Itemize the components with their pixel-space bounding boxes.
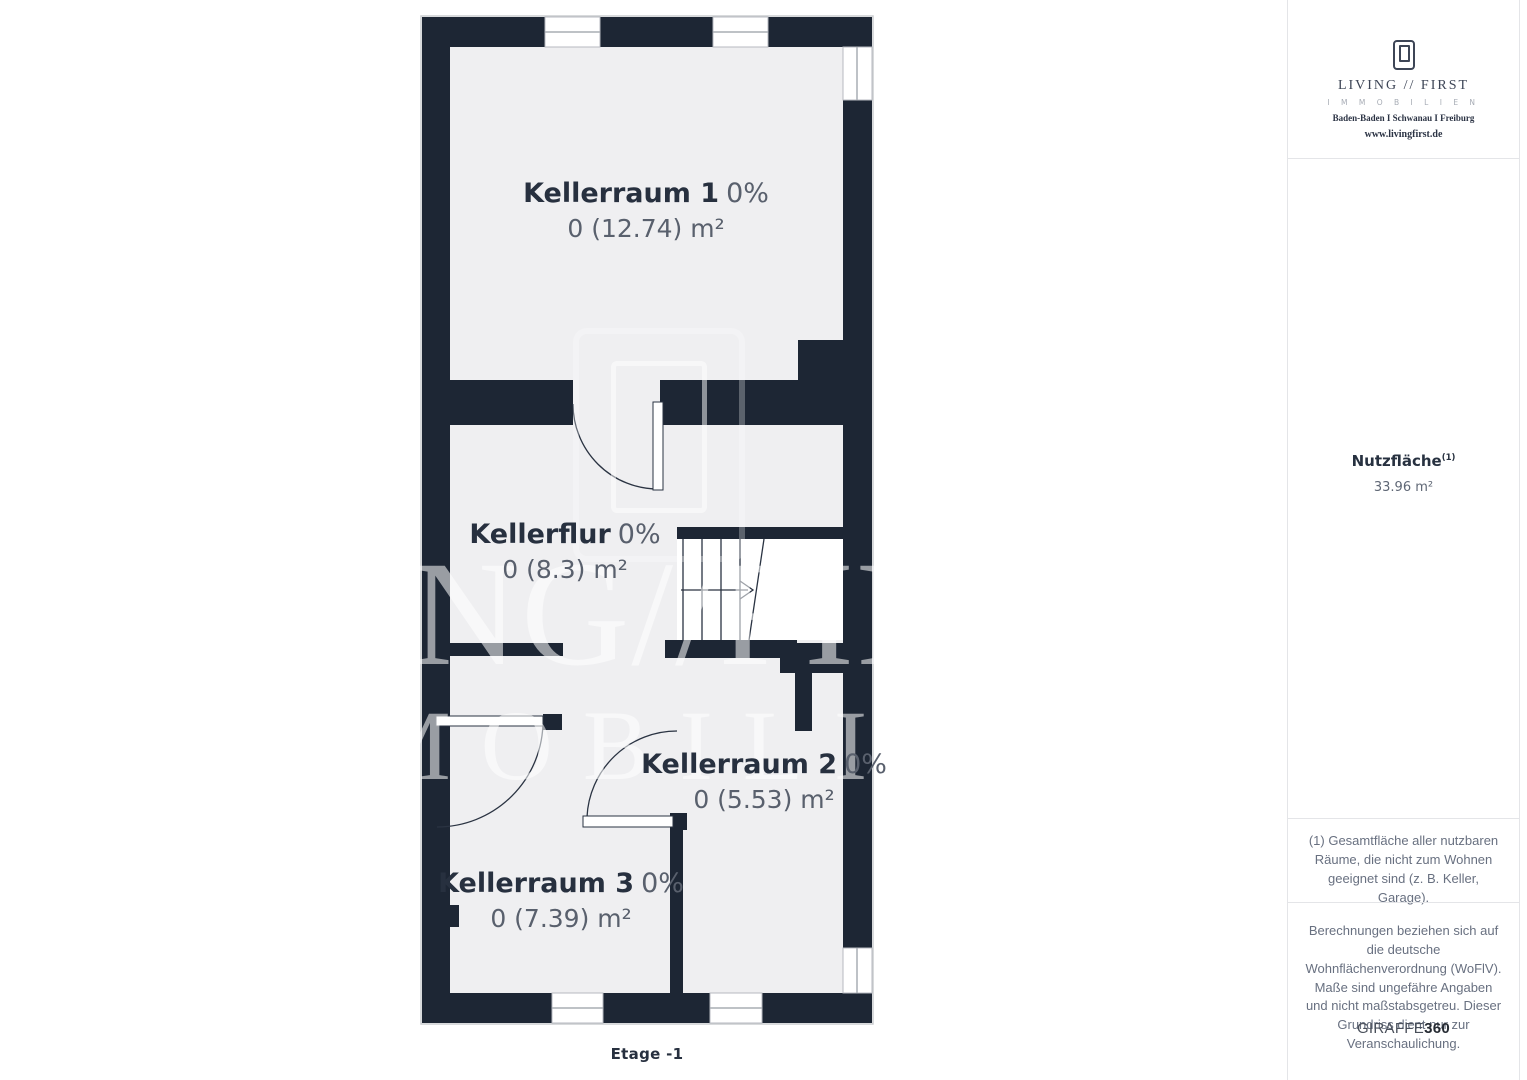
footnote-text: (1) Gesamtfläche aller nutzbaren Räume, … [1288,832,1519,907]
giraffe360-brand: GIRAFFE360 [1288,1020,1519,1037]
wall-kr3-door-jamb-right [543,714,562,730]
metric-value: 33.96 m² [1288,480,1519,495]
sidebar-divider [1288,902,1519,903]
window-bottom-1 [552,993,603,1023]
company-locations: Baden-Baden I Schwanau I Freiburg [1288,113,1519,123]
wall-kr3-door-jamb-left [422,714,437,730]
wall-right [843,17,872,1023]
wall-kr1-bottom-right [660,380,843,425]
company-logo-icon-inner [1399,45,1410,62]
wall-kr1-notch [798,340,843,382]
company-logo-icon [1393,40,1415,70]
window-bottom-2 [710,993,762,1023]
room-name: Kellerflur [469,519,610,550]
brand-suffix: 360 [1424,1020,1450,1037]
metric-label: Nutzfläche(1) [1288,452,1519,470]
company-logo-block: LIVING // FIRST I M M O B I L I E N Bade… [1288,40,1519,140]
wall-flur-bottom [450,643,563,656]
wall-stair-step [780,640,797,673]
window-right-bottom [843,948,872,993]
window-top-1 [545,17,600,47]
wall-stair-bottom [665,640,797,658]
metric-footnote-marker: (1) [1442,453,1456,463]
window-top-2 [713,17,768,47]
room-percent: 0% [641,868,684,899]
company-name: LIVING // FIRST [1288,78,1519,94]
staircase [677,539,843,640]
room-area: 0 (12.74) m² [523,216,769,241]
wall-kr1-bottom-left [450,380,573,425]
room-label-kellerraum-2: Kellerraum 20% 0 (5.53) m² [641,751,887,812]
wall-kr2-left-upper [795,643,812,731]
sidebar-divider [1288,818,1519,819]
wall-top [422,17,872,47]
wall-stair-top [677,527,843,539]
brand-name: GIRAFFE [1357,1020,1424,1037]
usable-area-metric: Nutzfläche(1) 33.96 m² [1288,452,1519,495]
room-name: Kellerraum 1 [523,178,719,209]
room-label-kellerflur: Kellerflur0% 0 (8.3) m² [469,521,660,582]
room-label-kellerraum-3: Kellerraum 30% 0 (7.39) m² [438,870,684,931]
info-sidebar: LIVING // FIRST I M M O B I L I E N Bade… [1287,0,1520,1080]
room-area: 0 (8.3) m² [469,557,660,582]
room-name: Kellerraum 3 [438,868,634,899]
floor-label: Etage -1 [611,1045,684,1063]
room-percent: 0% [726,178,769,209]
room-label-kellerraum-1: Kellerraum 10% 0 (12.74) m² [523,180,769,241]
wall-bottom [422,993,872,1023]
room-area: 0 (7.39) m² [438,906,684,931]
room-percent: 0% [844,749,887,780]
window-right-top [843,47,872,100]
company-website: www.livingfirst.de [1288,129,1519,140]
room-percent: 0% [618,519,661,550]
company-subtitle: I M M O B I L I E N [1288,98,1519,107]
room-name: Kellerraum 2 [641,749,837,780]
room-area: 0 (5.53) m² [641,787,887,812]
sidebar-divider [1288,158,1519,159]
